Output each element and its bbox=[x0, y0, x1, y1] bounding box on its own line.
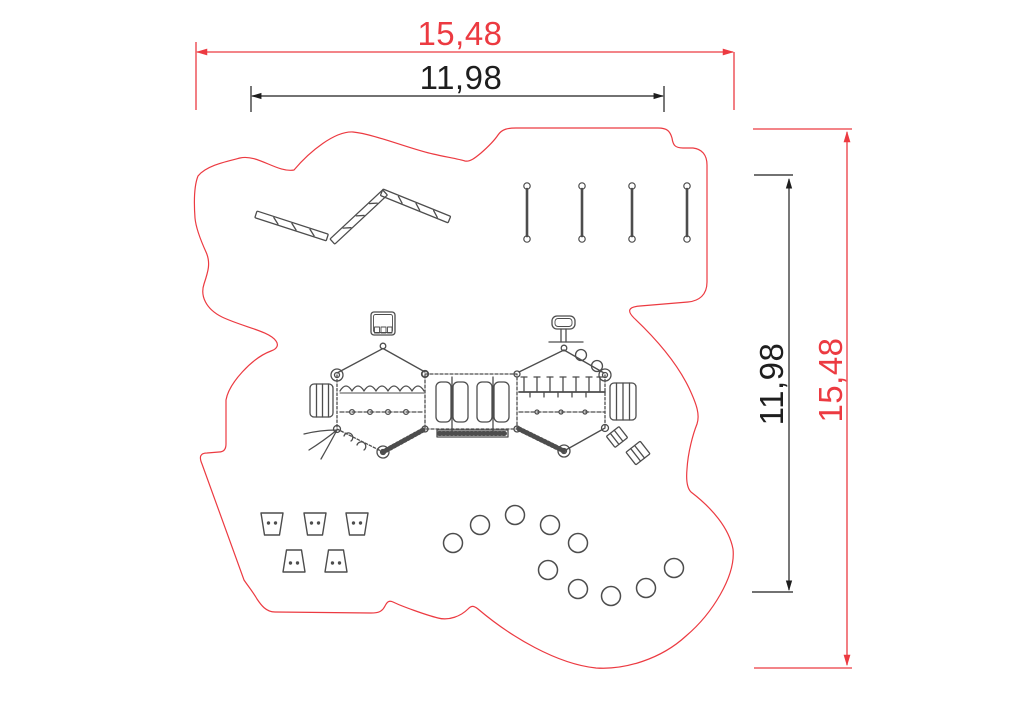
chain-edge bbox=[337, 429, 383, 452]
trapezoid-stone bbox=[283, 550, 305, 572]
dimension-right-inner-label: 11,98 bbox=[753, 343, 790, 426]
dimension-top-inner-label: 11,98 bbox=[420, 59, 503, 96]
rope bbox=[383, 349, 425, 373]
spiral-climber bbox=[576, 350, 587, 361]
stepping-pod bbox=[637, 579, 656, 598]
climbing-structure-left-bay bbox=[304, 312, 429, 459]
step-platform bbox=[606, 427, 627, 448]
rope bbox=[519, 350, 564, 372]
stepping-pod bbox=[602, 587, 621, 606]
stepping-pod bbox=[471, 516, 490, 535]
stepping-pod bbox=[569, 534, 588, 553]
stepping-pod bbox=[444, 534, 463, 553]
zigzag-balance-beam bbox=[255, 189, 451, 244]
trapezoid-stone bbox=[304, 513, 326, 535]
trapezoid-stone bbox=[261, 513, 283, 535]
dimension-right-outer-label: 15,48 bbox=[812, 337, 849, 422]
dimension-top-outer-label: 15,48 bbox=[417, 15, 502, 52]
balance-beam-segment bbox=[380, 189, 450, 223]
ladder-left bbox=[310, 384, 333, 417]
plan-drawing-page: 15,48 11,98 11,98 15,48 bbox=[0, 0, 1024, 724]
stepping-pod bbox=[541, 516, 560, 535]
rope-edge bbox=[564, 428, 605, 451]
climbing-structure bbox=[304, 312, 650, 465]
stepping-post bbox=[684, 183, 690, 242]
climbing-structure-middle-bay bbox=[422, 371, 520, 437]
safety-zone-path bbox=[194, 128, 733, 668]
caterpillar-traverse bbox=[340, 386, 424, 391]
equipment-linework bbox=[255, 183, 690, 606]
climbing-holds bbox=[344, 433, 366, 450]
stepping-post bbox=[629, 183, 635, 242]
balance-beam-segment bbox=[330, 190, 387, 244]
rope bbox=[564, 350, 604, 373]
step-platform bbox=[626, 441, 650, 465]
rope bbox=[337, 349, 383, 374]
panel bbox=[453, 382, 468, 422]
stepping-pod bbox=[539, 561, 558, 580]
ladder-right bbox=[610, 383, 636, 420]
step-chain bbox=[519, 429, 564, 451]
plan-drawing-canvas: 15,48 11,98 11,98 15,48 bbox=[0, 0, 1024, 724]
monkey-bars bbox=[519, 377, 605, 397]
safety-zone-outline bbox=[194, 128, 733, 668]
stepping-pod bbox=[665, 559, 684, 578]
trapezoid-stepping-stones bbox=[261, 513, 368, 572]
rope-fan bbox=[304, 430, 337, 459]
trapezoid-stone bbox=[325, 550, 347, 572]
step-chain bbox=[383, 429, 425, 452]
climbing-structure-right-bay bbox=[519, 316, 650, 465]
trapezoid-stone bbox=[346, 513, 368, 535]
stepping-posts-row bbox=[524, 183, 690, 242]
stepping-pod bbox=[569, 580, 588, 599]
stepping-post bbox=[524, 183, 530, 242]
round-stepping-pods bbox=[444, 506, 684, 606]
panel bbox=[477, 382, 492, 422]
panel bbox=[494, 382, 509, 422]
panel bbox=[436, 382, 451, 422]
stepping-post bbox=[579, 183, 585, 242]
stepping-pod bbox=[506, 506, 525, 525]
balance-beam-segment bbox=[255, 211, 328, 241]
